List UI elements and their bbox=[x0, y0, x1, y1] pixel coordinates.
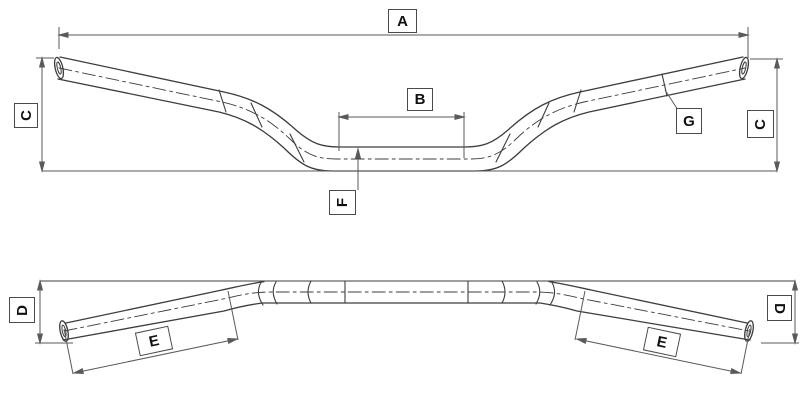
dimension-label-c-right: C bbox=[747, 110, 774, 138]
arrowhead bbox=[228, 339, 237, 344]
dimension-label-a-text: A bbox=[397, 14, 408, 29]
dimension-label-a: A bbox=[388, 9, 417, 33]
arrowhead bbox=[38, 334, 43, 343]
top-view-dimensions bbox=[35, 281, 799, 374]
dimension-e-right-extension-inner bbox=[575, 291, 585, 340]
dimension-label-d-left-text: D bbox=[15, 305, 30, 316]
drawing-canvas: A B C C F G D D E E bbox=[0, 0, 800, 400]
arrowhead bbox=[793, 281, 798, 290]
arrowhead bbox=[339, 115, 348, 120]
arrowhead bbox=[40, 162, 45, 171]
arrowhead bbox=[775, 162, 780, 171]
dimension-label-d-right: D bbox=[767, 295, 792, 321]
dimension-label-c-right-text: C bbox=[753, 119, 768, 130]
dimension-label-b: B bbox=[407, 88, 433, 111]
arrowhead bbox=[793, 334, 798, 343]
dimension-label-d-right-text: D bbox=[772, 303, 787, 314]
arrowhead bbox=[38, 281, 43, 290]
arrowhead bbox=[731, 369, 740, 374]
dimension-label-f: F bbox=[329, 190, 356, 215]
arrowhead bbox=[40, 58, 45, 67]
handlebar-technical-drawing bbox=[0, 0, 800, 400]
front-tube-centerline bbox=[59, 68, 745, 159]
dimension-label-b-text: B bbox=[415, 92, 426, 107]
arrowhead bbox=[577, 339, 586, 344]
dimension-label-e-left-text: E bbox=[148, 333, 161, 350]
arrowhead bbox=[59, 33, 68, 38]
dimension-label-c-left: C bbox=[14, 103, 38, 128]
dimension-label-e-right-text: E bbox=[656, 334, 669, 351]
front-view-drawing bbox=[53, 57, 750, 171]
dimension-label-c-left-text: C bbox=[19, 110, 34, 121]
arrowhead bbox=[455, 115, 464, 120]
dimension-e-left-extension-inner bbox=[228, 291, 238, 340]
dimension-e-right-extension-outer bbox=[741, 329, 750, 374]
arrowhead bbox=[739, 33, 748, 38]
top-left-grip-top-edge bbox=[66, 282, 264, 323]
arrowhead bbox=[775, 59, 780, 68]
dimension-label-g-text: G bbox=[683, 114, 695, 129]
dimension-label-f-text: F bbox=[335, 198, 350, 207]
arrowhead bbox=[356, 149, 361, 158]
front-tube-bottom-edge bbox=[58, 79, 745, 171]
top-right-bar-end bbox=[743, 320, 755, 342]
top-section-boundary-ticks bbox=[258, 281, 554, 305]
dimension-label-g: G bbox=[676, 108, 702, 134]
arrowhead bbox=[74, 369, 83, 374]
front-tube-top-edge bbox=[60, 57, 743, 147]
dimension-label-d-left: D bbox=[9, 297, 35, 323]
top-right-grip-top-edge bbox=[549, 282, 747, 323]
